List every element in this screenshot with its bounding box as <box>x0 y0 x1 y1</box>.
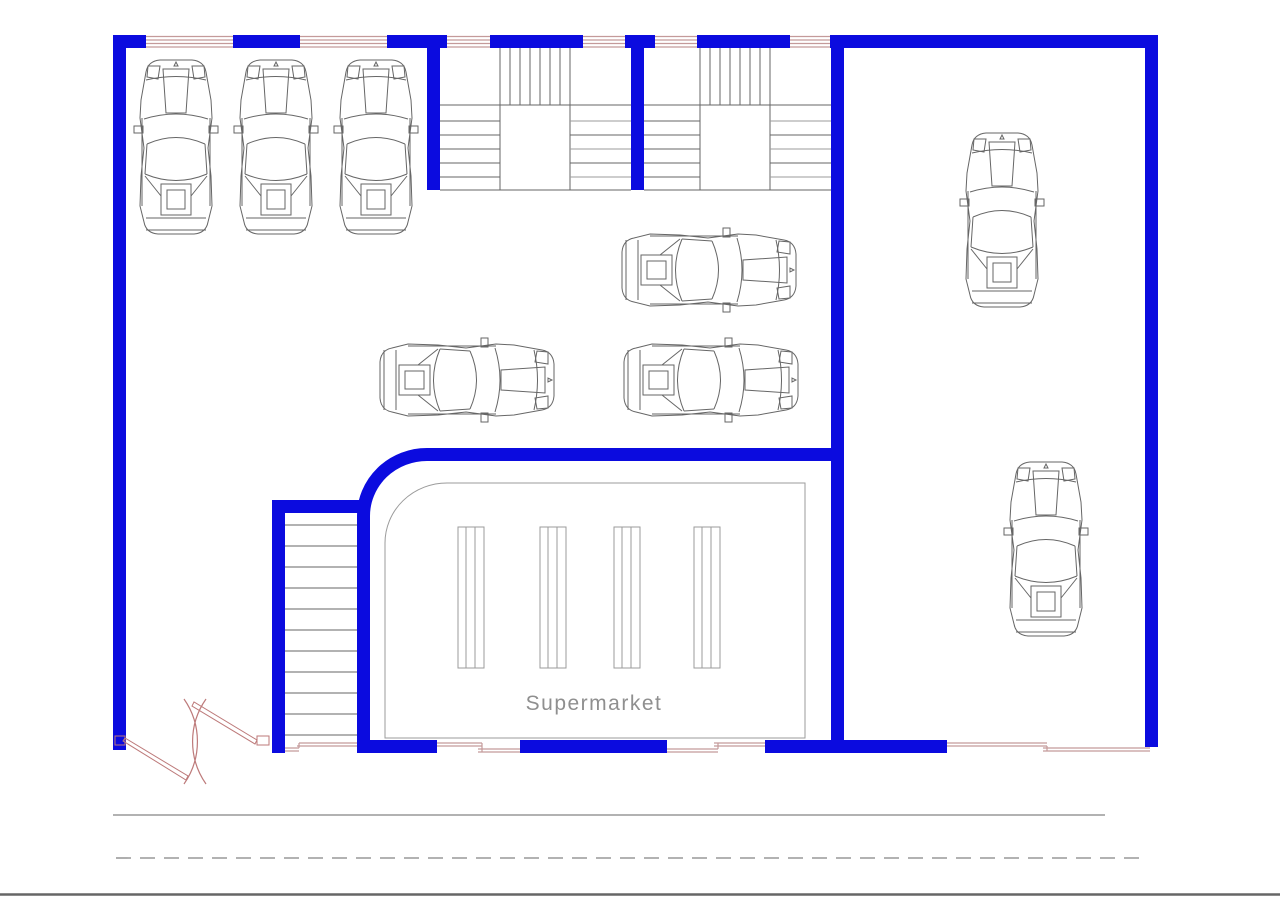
floor-plan-drawing: Supermarket <box>0 0 1280 897</box>
door-leaf-left <box>123 738 188 780</box>
staircase-bottom-left <box>285 525 357 751</box>
bottom-window <box>667 743 765 752</box>
bottom-wall-segment <box>765 740 947 753</box>
double-door <box>115 699 269 784</box>
staircase-left-wall <box>272 500 285 753</box>
bottom-wall-segment <box>520 740 667 753</box>
door-swing-arc <box>184 699 197 784</box>
shelf-unit <box>614 527 640 668</box>
bottom-window <box>947 743 1150 751</box>
staircase-top-wall <box>272 500 370 513</box>
car-vertical-2 <box>234 60 318 234</box>
top-wall-segment <box>625 35 655 48</box>
supermarket-label: Supermarket <box>526 692 663 715</box>
floor-plan-canvas: Supermarket <box>0 0 1280 897</box>
shelf-unit <box>458 527 484 668</box>
garage-divider-wall <box>831 48 844 753</box>
right-wall <box>1145 35 1158 747</box>
top-wall-segment <box>490 35 583 48</box>
road-lines <box>0 815 1280 895</box>
car-vertical-3 <box>334 60 418 234</box>
staircase-threshold <box>285 743 357 751</box>
top-wall-segment <box>697 35 790 48</box>
bottom-wall-segment <box>357 740 437 753</box>
interior-walls <box>272 48 947 753</box>
top-wall-segment <box>387 35 447 48</box>
supermarket-area: Supermarket <box>385 483 805 738</box>
stair-core-left <box>440 48 631 190</box>
car-horizontal-2 <box>380 338 554 422</box>
door-leaf-right <box>192 702 257 744</box>
stair-core-right <box>644 48 831 190</box>
door-hinge-right <box>257 736 269 745</box>
bottom-window <box>437 743 520 752</box>
car-vertical-4 <box>960 133 1044 307</box>
car-vertical-5 <box>1004 462 1088 636</box>
shelf-unit <box>694 527 720 668</box>
car-vertical-1 <box>134 60 218 234</box>
top-wall-segment <box>830 35 1158 48</box>
car-horizontal-3 <box>624 338 798 422</box>
shelf-unit <box>540 527 566 668</box>
top-wall-segment <box>233 35 300 48</box>
left-wall <box>113 35 126 750</box>
door-swing-arc <box>193 699 206 784</box>
stairwell-left-wall <box>427 48 440 190</box>
car-horizontal-1 <box>622 228 796 312</box>
stairwell-middle-wall <box>631 48 644 190</box>
